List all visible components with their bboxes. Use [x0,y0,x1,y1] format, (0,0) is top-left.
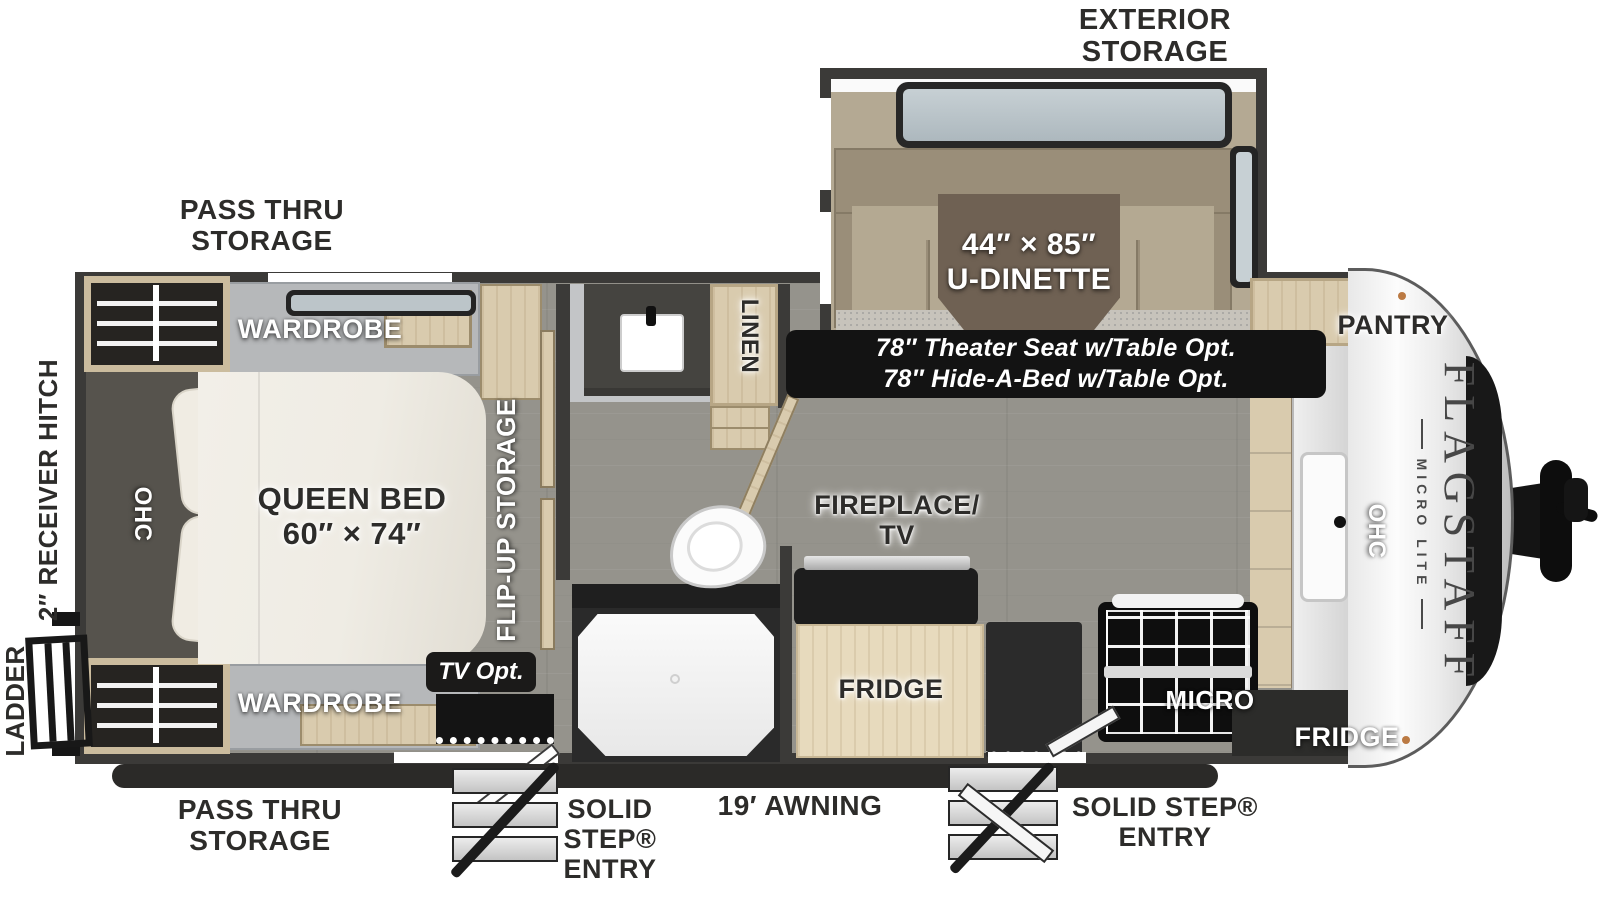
drawer-line [712,427,768,429]
options-banner: 78″ Theater Seat w/Table Opt. 78″ Hide-A… [786,330,1326,398]
fireplace-mantel [804,556,970,570]
fireplace-tv-unit [794,568,978,626]
flip-up-storage-shelf-upper [540,330,555,488]
hide-a-bed-option-label: 78″ Hide-A-Bed w/Table Opt. [883,365,1229,394]
brand-name: FLAGSTAFF [1435,362,1486,686]
fireplace-tv-label: FIREPLACE/ TV [797,490,997,550]
vanity-edge [584,388,710,396]
exterior-storage-label: EXTERIOR STORAGE [1005,4,1305,69]
slide-skylight-frame [896,82,1232,148]
ladder-rung [44,643,56,741]
ladder-label: LADDER [1,626,27,776]
wardrobe-bottom-label: WARDROBE [220,688,420,719]
cabinet-divider [153,667,159,743]
brand-mark: FLAGSTAFF MICRO LITE [1412,312,1488,736]
pass-thru-cabinet-top [84,276,230,372]
floorplan-scene: 44″ × 85″ U-DINETTE 78″ Theater Seat w/T… [0,0,1600,901]
theater-seat-option-label: 78″ Theater Seat w/Table Opt. [876,334,1236,363]
cabinet-divider [153,285,159,361]
bedroom-window-strip [268,273,452,282]
rear-ladder [25,634,93,749]
marker-light-top [1398,292,1406,300]
flip-up-storage-label: FLIP-UP STORAGE [492,370,520,670]
fridge-front-label: FRIDGE [1247,722,1447,753]
galley-faucet [1334,516,1346,528]
slide-skylight-glass [903,89,1225,141]
pantry-label: PANTRY [1298,310,1488,340]
brand-sub-row: MICRO LITE [1415,419,1431,630]
bedroom-tv-mount [436,694,554,744]
pass-thru-cabinet-bottom [84,658,230,754]
micro-label: MICRO [1130,686,1290,716]
entry-door-2-opening [988,752,1086,763]
brand-sub: MICRO LITE [1415,459,1431,590]
hitch-jack [1540,460,1572,582]
u-dinette-label: 44″ × 85″ U-DINETTE [929,228,1129,297]
fireplace-alcove-wall [780,546,792,762]
slide-left-window-strip-1 [820,98,831,190]
brand-dash-left [1422,419,1424,449]
bedroom-skylight-frame [286,290,476,316]
bath-wall-left [556,284,570,580]
slide-left-window-strip-2 [820,212,831,304]
pass-thru-storage-top-label: PASS THRU STORAGE [112,194,412,257]
shower-pan [578,614,774,756]
range-knob-strip [1112,594,1244,608]
ladder-rung [62,642,74,740]
receiver-hitch-label: 2″ RECEIVER HITCH [34,330,62,650]
queen-bed-label: QUEEN BED 60″ × 74″ [222,482,482,551]
solid-step-entry-main-label: SOLID STEP® ENTRY [1040,792,1290,852]
bath-faucet [646,306,656,326]
wardrobe-top-label: WARDROBE [220,314,420,345]
shower-threshold [572,584,780,608]
linen-label: LINEN [734,281,762,391]
bedroom-skylight-glass [291,295,471,311]
slide-window-frame [1230,146,1258,288]
flip-up-storage-shelf-lower [540,498,555,650]
micro-shelf-bar [1104,666,1252,678]
slide-window-glass [1236,152,1252,282]
pass-thru-storage-bottom-label: PASS THRU STORAGE [110,794,410,857]
fridge-interior-label: FRIDGE [816,674,966,704]
awning-label: 19′ AWNING [660,790,940,821]
hitch-coupler [1564,478,1588,522]
linen-drawers [710,406,770,450]
toilet-seat [682,515,748,577]
shower-drain [670,674,680,684]
ohc-kitchen-label: OHC [1364,471,1390,591]
shower-pan-frame [572,608,780,762]
ohc-bedroom-label: OHC [128,444,156,584]
brand-dash-right [1422,599,1424,629]
